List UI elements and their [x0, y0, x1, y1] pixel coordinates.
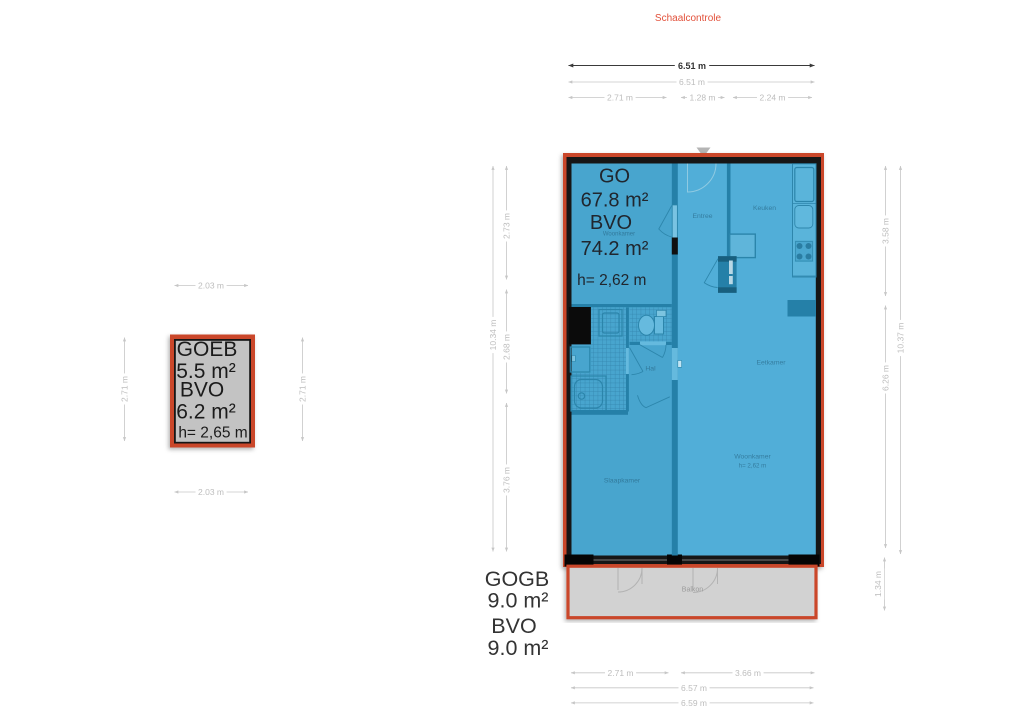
svg-text:2.68 m: 2.68 m — [502, 334, 512, 360]
svg-text:2.03 m: 2.03 m — [198, 281, 224, 291]
svg-text:GOGB: GOGB — [485, 567, 550, 591]
svg-text:h= 2,62 m: h= 2,62 m — [577, 272, 646, 289]
svg-text:6.59 m: 6.59 m — [681, 698, 707, 708]
svg-text:Schaalcontrole: Schaalcontrole — [655, 13, 722, 24]
svg-text:Slaapkamer: Slaapkamer — [604, 478, 641, 485]
svg-text:6.26 m: 6.26 m — [881, 365, 891, 391]
svg-text:Balkon: Balkon — [682, 587, 704, 594]
svg-text:Hal: Hal — [645, 366, 656, 373]
svg-text:2.24 m: 2.24 m — [760, 93, 786, 103]
svg-text:2.71 m: 2.71 m — [608, 668, 634, 678]
svg-text:Eetkamer: Eetkamer — [756, 360, 786, 367]
svg-text:6.51 m: 6.51 m — [679, 77, 705, 87]
svg-text:6.51 m: 6.51 m — [678, 61, 706, 71]
svg-text:h= 2,62 m: h= 2,62 m — [739, 463, 767, 470]
svg-text:1.28 m: 1.28 m — [690, 93, 716, 103]
svg-text:2.73 m: 2.73 m — [502, 213, 512, 239]
svg-text:2.71 m: 2.71 m — [607, 93, 633, 103]
svg-text:6.57 m: 6.57 m — [681, 683, 707, 693]
svg-text:10.37 m: 10.37 m — [896, 323, 906, 354]
svg-text:2.03 m: 2.03 m — [198, 487, 224, 497]
svg-text:6.2 m²: 6.2 m² — [176, 401, 236, 424]
svg-text:Entree: Entree — [692, 213, 712, 220]
svg-text:Keuken: Keuken — [753, 205, 776, 212]
svg-text:BVO: BVO — [491, 614, 536, 638]
svg-text:10.34 m: 10.34 m — [488, 320, 498, 351]
svg-text:9.0 m²: 9.0 m² — [488, 589, 549, 613]
svg-text:67.8 m²: 67.8 m² — [581, 190, 649, 212]
svg-text:2.71 m: 2.71 m — [298, 376, 308, 402]
svg-text:3.66 m: 3.66 m — [735, 668, 761, 678]
svg-text:h= 2,65 m: h= 2,65 m — [178, 425, 247, 442]
svg-text:9.0 m²: 9.0 m² — [488, 636, 549, 660]
svg-text:Woonkamer: Woonkamer — [734, 454, 771, 461]
svg-text:3.58 m: 3.58 m — [881, 218, 891, 244]
svg-text:BVO: BVO — [180, 379, 224, 402]
svg-text:74.2 m²: 74.2 m² — [581, 238, 649, 260]
svg-text:3.76 m: 3.76 m — [502, 467, 512, 493]
svg-text:GOEB: GOEB — [177, 338, 238, 361]
svg-text:GO: GO — [599, 166, 630, 188]
svg-text:BVO: BVO — [590, 212, 632, 234]
svg-text:1.34 m: 1.34 m — [873, 571, 883, 597]
svg-text:2.71 m: 2.71 m — [120, 376, 130, 402]
